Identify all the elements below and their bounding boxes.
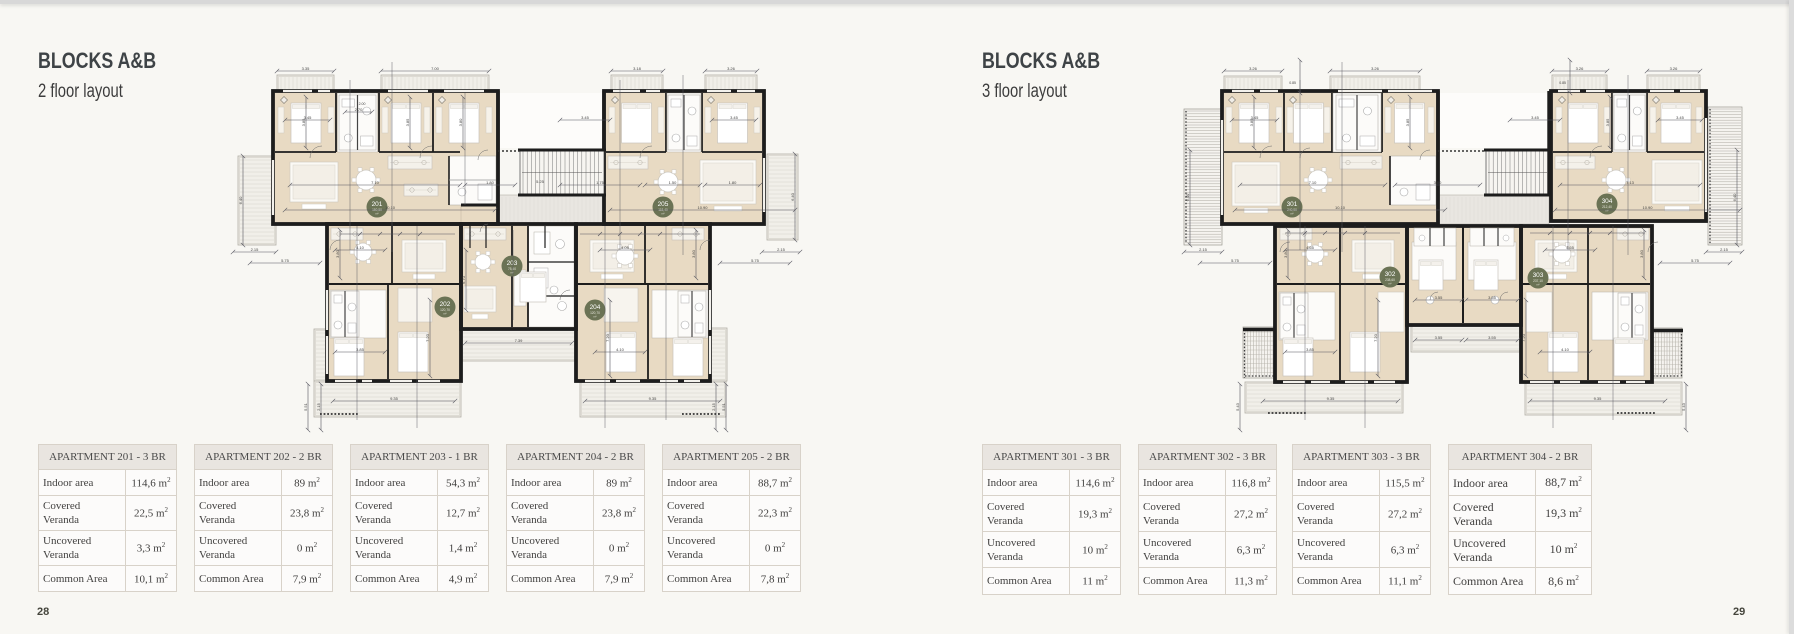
svg-text:6.40: 6.40 <box>1732 193 1737 202</box>
svg-text:4.10: 4.10 <box>356 245 365 250</box>
svg-text:0.85: 0.85 <box>1289 81 1296 85</box>
svg-text:2.15: 2.15 <box>251 247 260 252</box>
svg-text:3.35: 3.35 <box>302 66 311 71</box>
svg-text:6.40: 6.40 <box>790 192 795 201</box>
svg-text:3.18: 3.18 <box>633 66 642 71</box>
svg-text:203: 203 <box>507 260 518 267</box>
svg-text:212,40: 212,40 <box>1602 205 1612 209</box>
svg-text:3.85: 3.85 <box>1249 118 1254 127</box>
svg-text:3.80: 3.80 <box>458 118 463 127</box>
svg-text:5.75: 5.75 <box>751 258 760 263</box>
svg-text:75,40: 75,40 <box>508 267 516 271</box>
svg-text:9.35: 9.35 <box>390 396 399 401</box>
svg-text:7.20: 7.20 <box>1521 333 1526 342</box>
svg-text:7.20: 7.20 <box>425 333 430 342</box>
svg-text:2.00: 2.00 <box>359 102 366 106</box>
svg-text:5.43: 5.43 <box>1235 402 1240 411</box>
svg-text:2.15: 2.15 <box>711 402 716 411</box>
svg-text:2.15: 2.15 <box>1720 247 1729 252</box>
svg-text:7.13: 7.13 <box>1626 180 1635 185</box>
svg-text:5.75: 5.75 <box>281 258 290 263</box>
svg-text:4.05: 4.05 <box>621 245 630 250</box>
svg-text:3.55: 3.55 <box>1488 335 1497 340</box>
svg-text:120,70: 120,70 <box>590 311 600 315</box>
svg-text:m²: m² <box>1536 284 1539 287</box>
svg-text:3.55: 3.55 <box>1435 335 1444 340</box>
svg-text:m²: m² <box>375 213 378 216</box>
svg-text:1.80: 1.80 <box>729 180 738 185</box>
svg-text:4.10: 4.10 <box>616 347 625 352</box>
svg-text:2.15: 2.15 <box>1199 247 1208 252</box>
svg-text:120,70: 120,70 <box>440 308 450 312</box>
svg-text:3.85: 3.85 <box>301 118 306 127</box>
svg-text:304: 304 <box>1602 198 1613 205</box>
svg-text:1.75: 1.75 <box>596 180 605 185</box>
svg-text:3.00: 3.00 <box>1434 180 1443 185</box>
svg-text:3.45: 3.45 <box>581 115 590 120</box>
svg-text:3.85: 3.85 <box>1605 118 1610 127</box>
svg-text:3.85: 3.85 <box>1306 347 1315 352</box>
svg-text:5.75: 5.75 <box>1691 258 1700 263</box>
svg-text:3.85: 3.85 <box>356 347 365 352</box>
svg-text:7.20: 7.20 <box>605 333 610 342</box>
svg-text:3.55: 3.55 <box>1488 295 1497 300</box>
svg-text:2.70: 2.70 <box>355 107 364 112</box>
svg-text:3.45: 3.45 <box>1531 115 1540 120</box>
svg-text:7.00: 7.00 <box>431 66 440 71</box>
svg-text:2.15: 2.15 <box>777 247 786 252</box>
svg-text:7.10: 7.10 <box>1309 180 1318 185</box>
svg-text:10.90: 10.90 <box>697 205 708 210</box>
svg-text:5.25: 5.25 <box>536 179 545 184</box>
svg-text:3.85: 3.85 <box>405 118 410 127</box>
svg-text:9.35: 9.35 <box>1594 396 1603 401</box>
svg-text:202: 202 <box>440 301 451 308</box>
svg-text:6.70: 6.70 <box>461 275 466 284</box>
svg-text:4.10: 4.10 <box>1561 347 1570 352</box>
svg-text:10.10: 10.10 <box>385 205 396 210</box>
svg-text:3.26: 3.26 <box>1670 66 1679 71</box>
svg-text:303: 303 <box>1533 272 1544 279</box>
svg-text:7.10: 7.10 <box>371 180 380 185</box>
svg-text:1.80: 1.80 <box>486 180 495 185</box>
svg-text:301: 301 <box>1287 201 1298 208</box>
svg-text:3.80: 3.80 <box>691 249 696 258</box>
svg-text:4.65: 4.65 <box>1306 245 1315 250</box>
svg-text:4.65: 4.65 <box>1566 245 1575 250</box>
svg-text:5.75: 5.75 <box>1231 258 1240 263</box>
svg-text:m²: m² <box>1290 213 1293 216</box>
svg-text:302: 302 <box>1385 271 1396 278</box>
svg-text:3.80: 3.80 <box>1639 249 1644 258</box>
svg-text:3.55: 3.55 <box>1435 295 1444 300</box>
svg-text:1.50: 1.50 <box>669 180 678 185</box>
svg-text:204: 204 <box>590 304 601 311</box>
svg-text:3.45: 3.45 <box>730 115 739 120</box>
svg-text:6.40: 6.40 <box>1185 193 1190 202</box>
svg-text:10.90: 10.90 <box>1642 205 1653 210</box>
svg-text:2.15: 2.15 <box>316 402 321 411</box>
svg-text:3.26: 3.26 <box>1249 66 1258 71</box>
svg-text:9.35: 9.35 <box>1327 396 1336 401</box>
svg-text:0.85: 0.85 <box>1559 81 1566 85</box>
svg-text:3.45: 3.45 <box>1676 115 1685 120</box>
svg-text:237,10: 237,10 <box>1533 279 1543 283</box>
svg-text:9.35: 9.35 <box>649 396 658 401</box>
svg-text:10.10: 10.10 <box>1335 205 1346 210</box>
svg-text:5.51: 5.51 <box>721 402 726 411</box>
svg-text:m²: m² <box>593 316 596 319</box>
svg-text:3.80: 3.80 <box>335 249 340 258</box>
svg-text:5.43: 5.43 <box>1681 402 1686 411</box>
svg-text:6.40: 6.40 <box>238 196 243 205</box>
svg-text:205: 205 <box>658 201 669 208</box>
svg-text:m²: m² <box>661 213 664 216</box>
svg-text:201: 201 <box>372 201 383 208</box>
svg-text:m²: m² <box>443 313 446 316</box>
svg-text:7.39: 7.39 <box>515 338 524 343</box>
svg-text:238,60: 238,60 <box>1385 278 1395 282</box>
svg-text:3.85: 3.85 <box>1405 118 1410 127</box>
svg-text:7.20: 7.20 <box>1373 333 1378 342</box>
svg-text:5.51: 5.51 <box>303 402 308 411</box>
svg-text:3.26: 3.26 <box>727 66 736 71</box>
svg-text:3.26: 3.26 <box>1371 66 1380 71</box>
svg-text:3.80: 3.80 <box>1283 249 1288 258</box>
svg-text:m²: m² <box>1388 283 1391 286</box>
svg-text:3.26: 3.26 <box>1576 66 1585 71</box>
